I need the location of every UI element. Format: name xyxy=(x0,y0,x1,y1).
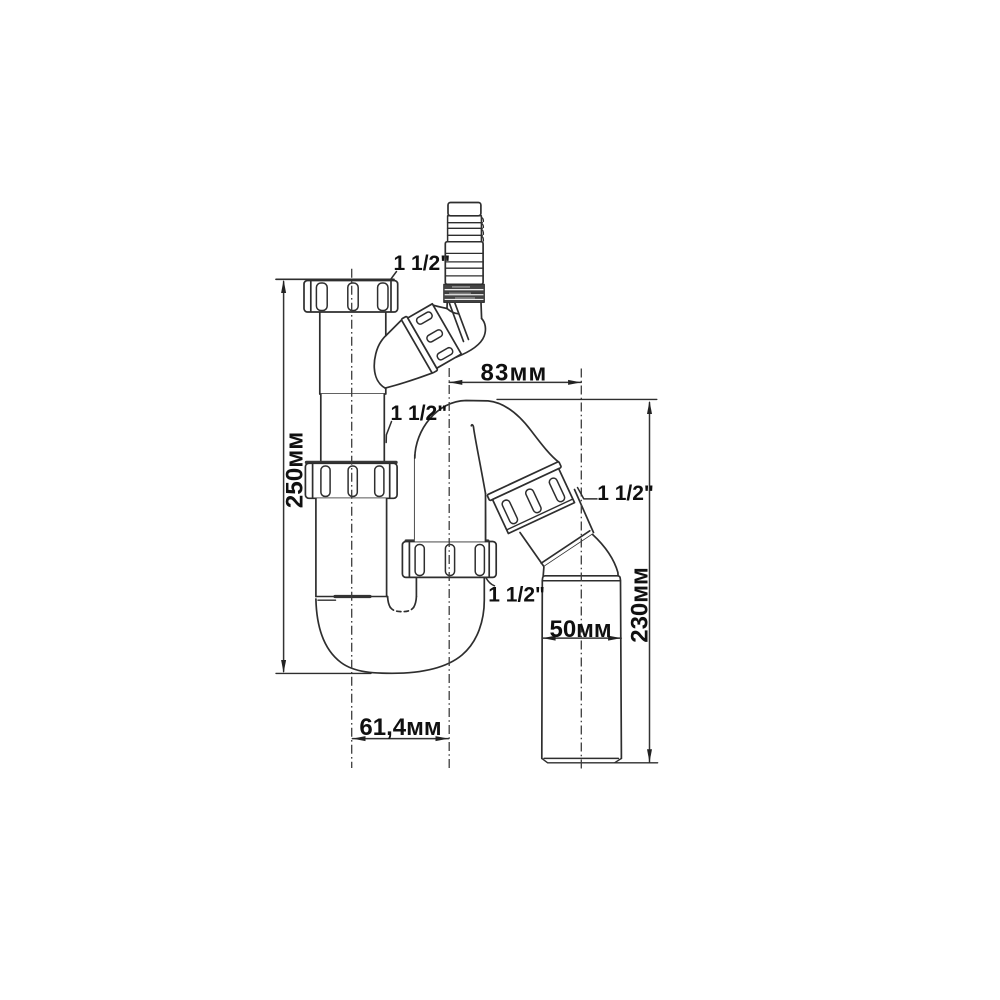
svg-text:1 1/2": 1 1/2" xyxy=(597,482,654,505)
svg-text:1 1/2": 1 1/2" xyxy=(488,583,545,606)
svg-text:50мм: 50мм xyxy=(549,616,611,643)
svg-text:83мм: 83мм xyxy=(480,359,547,386)
svg-text:1 1/2": 1 1/2" xyxy=(394,252,451,275)
svg-text:230мм: 230мм xyxy=(627,567,654,643)
svg-text:250мм: 250мм xyxy=(282,432,309,509)
svg-text:61,4мм: 61,4мм xyxy=(359,714,441,741)
svg-text:1 1/2": 1 1/2" xyxy=(391,402,448,425)
